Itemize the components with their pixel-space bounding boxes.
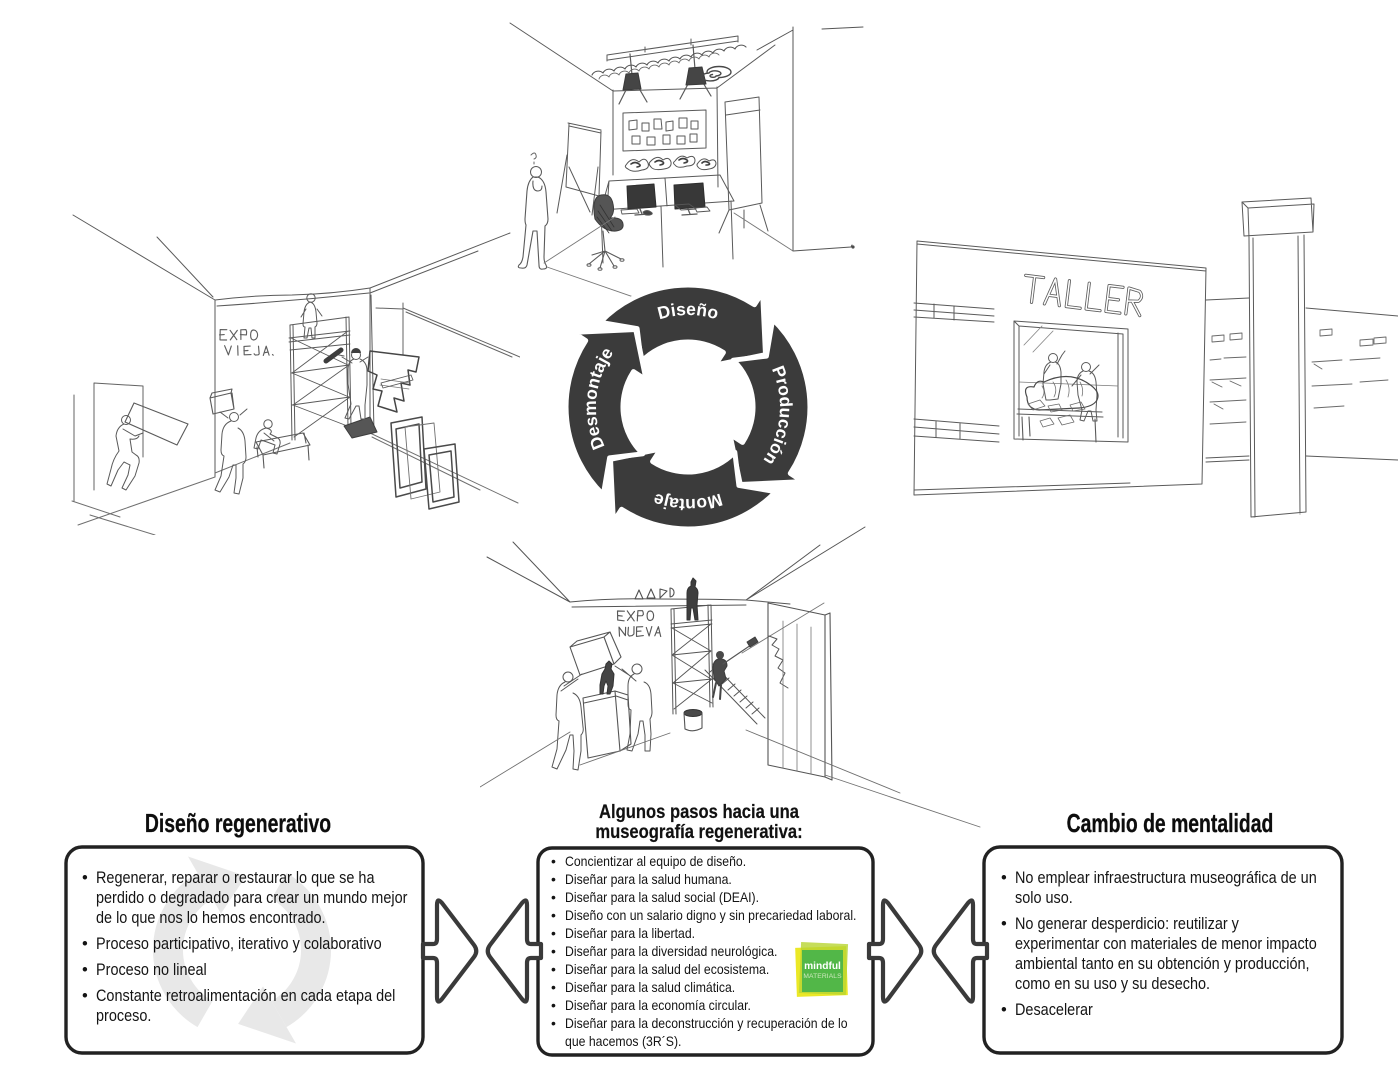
svg-text:mindful: mindful — [804, 961, 841, 972]
svg-text:MATERIALS: MATERIALS — [803, 973, 842, 980]
